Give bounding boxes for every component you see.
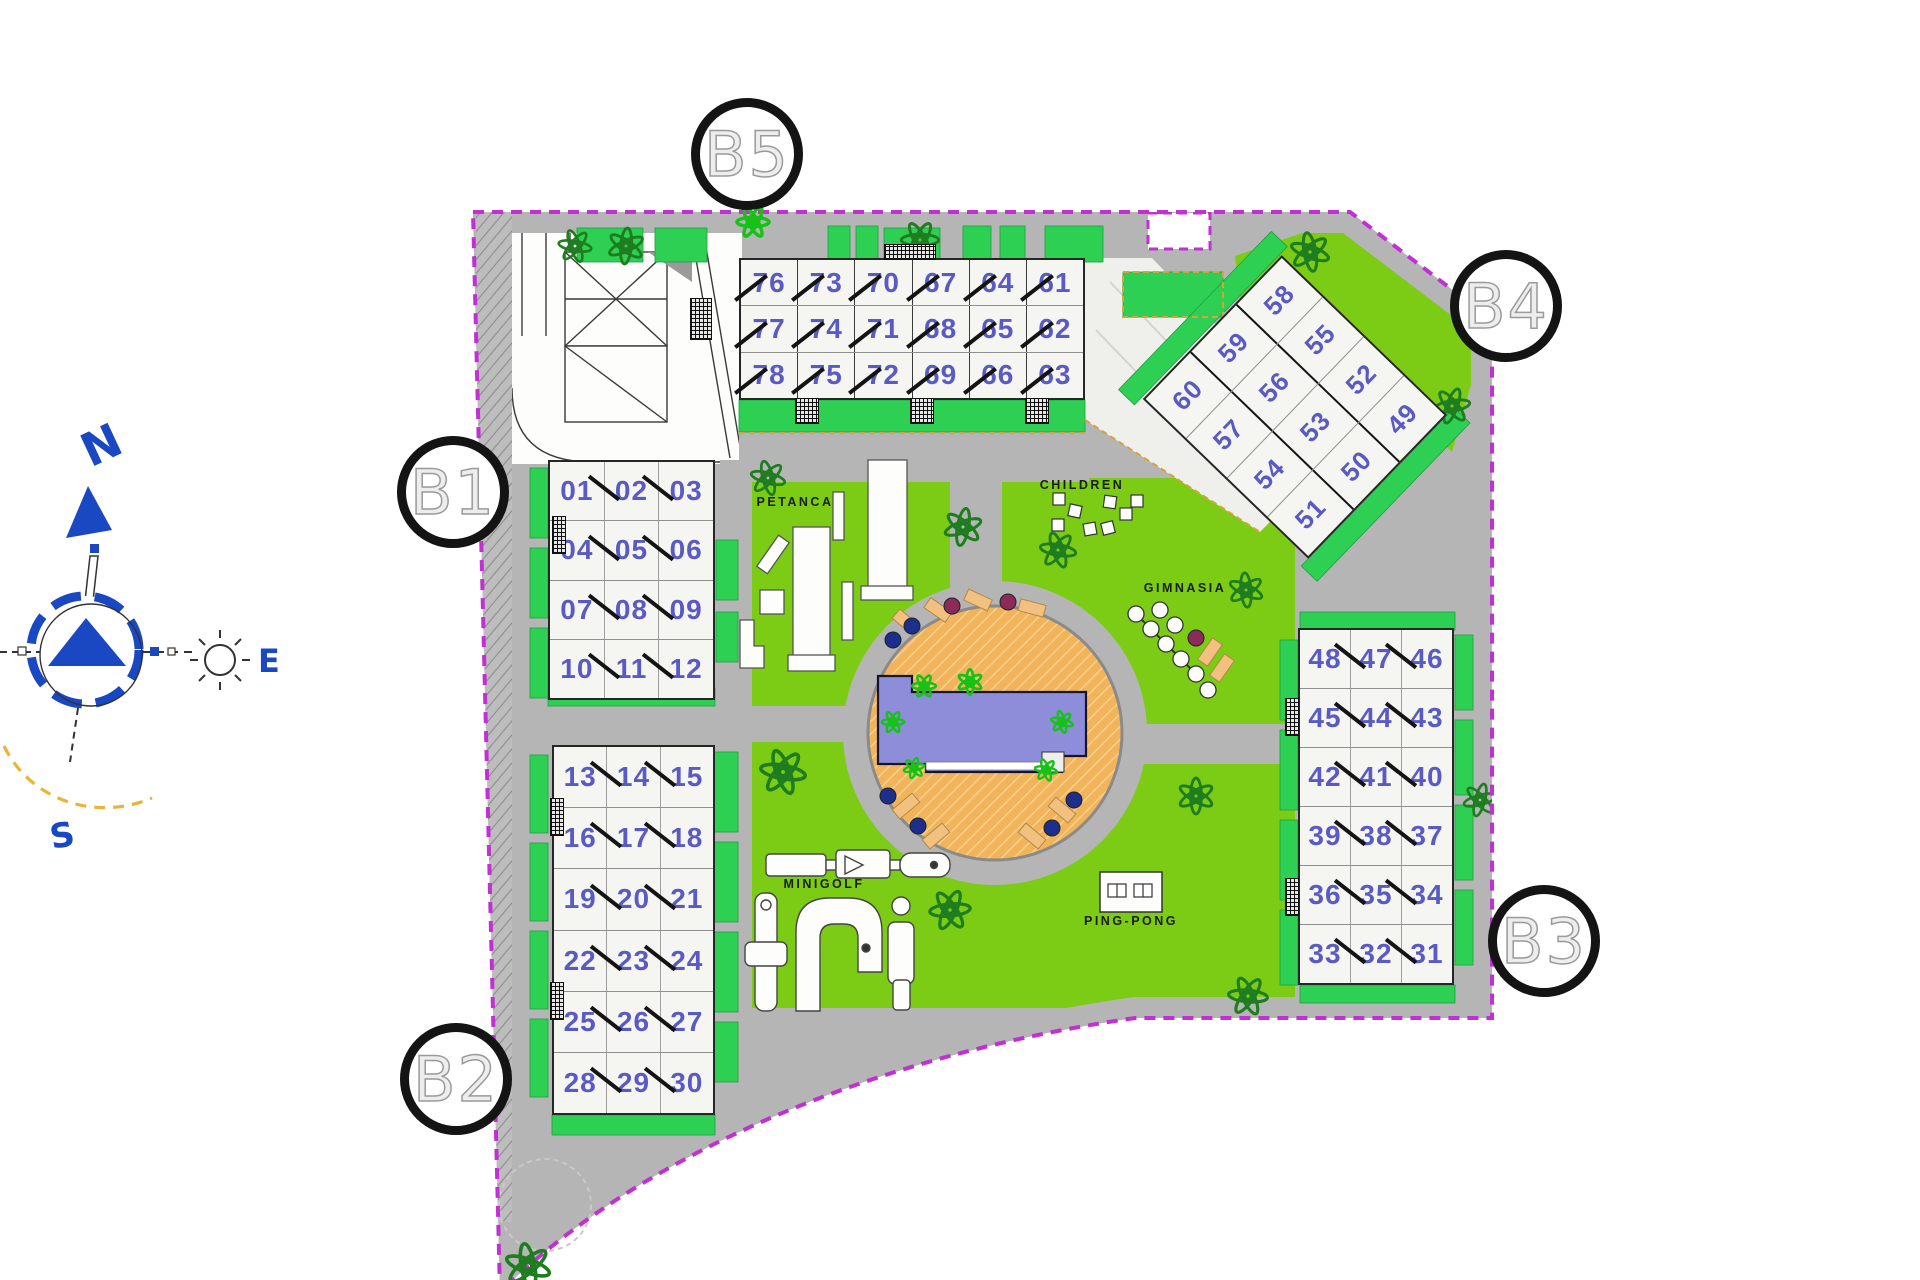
unit-40: 40 (1401, 748, 1452, 806)
unit-07: 07 (550, 581, 604, 639)
unit-35: 35 (1350, 866, 1401, 924)
unit-row: 222324 (554, 930, 713, 991)
compass-east-label: E (258, 642, 280, 680)
block-marker-b4-label: B4 (1463, 270, 1549, 343)
stair-hatch (1285, 878, 1299, 916)
unit-78: 78 (741, 353, 797, 398)
unit-70: 70 (854, 260, 911, 305)
reserved-plot-dashed (1148, 213, 1210, 249)
block-marker-b5: B5 (691, 98, 803, 210)
unit-38: 38 (1350, 807, 1401, 865)
unit-67: 67 (912, 260, 969, 305)
block-marker-b4: B4 (1450, 250, 1562, 362)
label-children: CHILDREN (1040, 478, 1125, 492)
unit-77: 77 (741, 306, 797, 351)
block-marker-b3-label: B3 (1501, 905, 1587, 978)
unit-30: 30 (660, 1053, 713, 1113)
compass-rose (0, 486, 250, 808)
block-marker-b2: B2 (400, 1023, 512, 1135)
unit-row: 282930 (554, 1052, 713, 1113)
unit-01: 01 (550, 462, 604, 520)
unit-62: 62 (1026, 306, 1083, 351)
unit-17: 17 (606, 808, 659, 868)
unit-row: 767370676461 (741, 260, 1083, 305)
stair-hatch (795, 398, 819, 424)
stair-hatch (690, 298, 712, 340)
stair-hatch (910, 398, 934, 424)
unit-45: 45 (1300, 689, 1350, 747)
unit-row: 333231 (1300, 924, 1452, 983)
unit-09: 09 (658, 581, 713, 639)
unit-69: 69 (912, 353, 969, 398)
label-minigolf: MINIGOLF (783, 877, 864, 891)
unit-row: 484746 (1300, 630, 1452, 688)
unit-row: 424140 (1300, 747, 1452, 806)
unit-37: 37 (1401, 807, 1452, 865)
unit-31: 31 (1401, 925, 1452, 983)
stair-hatch (1025, 398, 1049, 424)
unit-66: 66 (969, 353, 1026, 398)
block-marker-b5-label: B5 (704, 118, 790, 191)
unit-10: 10 (550, 640, 604, 698)
stair-hatch (1285, 698, 1299, 736)
block-marker-b3: B3 (1488, 885, 1600, 997)
unit-46: 46 (1401, 630, 1452, 688)
unit-11: 11 (604, 640, 659, 698)
unit-05: 05 (604, 521, 659, 579)
unit-row: 777471686562 (741, 305, 1083, 351)
stair-hatch (884, 244, 936, 260)
unit-42: 42 (1300, 748, 1350, 806)
unit-65: 65 (969, 306, 1026, 351)
unit-row: 161718 (554, 807, 713, 868)
unit-64: 64 (969, 260, 1026, 305)
unit-74: 74 (797, 306, 854, 351)
unit-19: 19 (554, 869, 606, 929)
unit-row: 363534 (1300, 865, 1452, 924)
label-petanca: PETANCA (757, 495, 834, 509)
unit-39: 39 (1300, 807, 1350, 865)
unit-15: 15 (660, 747, 713, 807)
block-marker-b2-label: B2 (413, 1043, 499, 1116)
label-ping-pong: PING-PONG (1084, 914, 1178, 928)
unit-row: 393837 (1300, 806, 1452, 865)
unit-row: 252627 (554, 991, 713, 1052)
unit-03: 03 (658, 462, 713, 520)
unit-32: 32 (1350, 925, 1401, 983)
block-marker-b1-label: B1 (410, 456, 496, 529)
unit-27: 27 (660, 992, 713, 1052)
sun-path-arc (4, 746, 152, 808)
unit-47: 47 (1350, 630, 1401, 688)
unit-41: 41 (1350, 748, 1401, 806)
unit-row: 131415 (554, 747, 713, 807)
unit-14: 14 (606, 747, 659, 807)
unit-21: 21 (660, 869, 713, 929)
unit-76: 76 (741, 260, 797, 305)
unit-36: 36 (1300, 866, 1350, 924)
unit-29: 29 (606, 1053, 659, 1113)
unit-72: 72 (854, 353, 911, 398)
unit-12: 12 (658, 640, 713, 698)
block-marker-b1: B1 (397, 436, 509, 548)
unit-row: 101112 (550, 639, 713, 698)
building-b1-units: 010203040506070809101112 (548, 460, 715, 700)
unit-33: 33 (1300, 925, 1350, 983)
unit-71: 71 (854, 306, 911, 351)
unit-43: 43 (1401, 689, 1452, 747)
building-b5-units: 767370676461777471686562787572696663 (739, 258, 1085, 400)
ping-pong-tables (1100, 872, 1162, 912)
site-plan-graphics (0, 0, 1920, 1280)
unit-row: 070809 (550, 580, 713, 639)
unit-75: 75 (797, 353, 854, 398)
stair-hatch (550, 982, 564, 1020)
stair-hatch (550, 798, 564, 836)
unit-24: 24 (660, 931, 713, 991)
unit-23: 23 (606, 931, 659, 991)
unit-26: 26 (606, 992, 659, 1052)
unit-34: 34 (1401, 866, 1452, 924)
unit-48: 48 (1300, 630, 1350, 688)
unit-61: 61 (1026, 260, 1083, 305)
unit-44: 44 (1350, 689, 1401, 747)
unit-68: 68 (912, 306, 969, 351)
building-b2-units: 131415161718192021222324252627282930 (552, 745, 715, 1115)
unit-18: 18 (660, 808, 713, 868)
unit-20: 20 (606, 869, 659, 929)
unit-row: 787572696663 (741, 352, 1083, 398)
unit-28: 28 (554, 1053, 606, 1113)
unit-08: 08 (604, 581, 659, 639)
label-gimnasia: GIMNASIA (1144, 581, 1227, 595)
site-plan: B5 B4 B1 B2 B3 7673706764617774716865627… (0, 0, 1920, 1280)
unit-63: 63 (1026, 353, 1083, 398)
unit-row: 040506 (550, 520, 713, 579)
unit-02: 02 (604, 462, 659, 520)
unit-row: 010203 (550, 462, 713, 520)
unit-06: 06 (658, 521, 713, 579)
building-b3-units: 484746454443424140393837363534333231 (1298, 628, 1454, 985)
unit-row: 454443 (1300, 688, 1452, 747)
sun-icon (190, 630, 250, 690)
unit-73: 73 (797, 260, 854, 305)
unit-row: 192021 (554, 868, 713, 929)
stair-hatch (552, 516, 566, 554)
north-arrow-icon (66, 486, 112, 538)
